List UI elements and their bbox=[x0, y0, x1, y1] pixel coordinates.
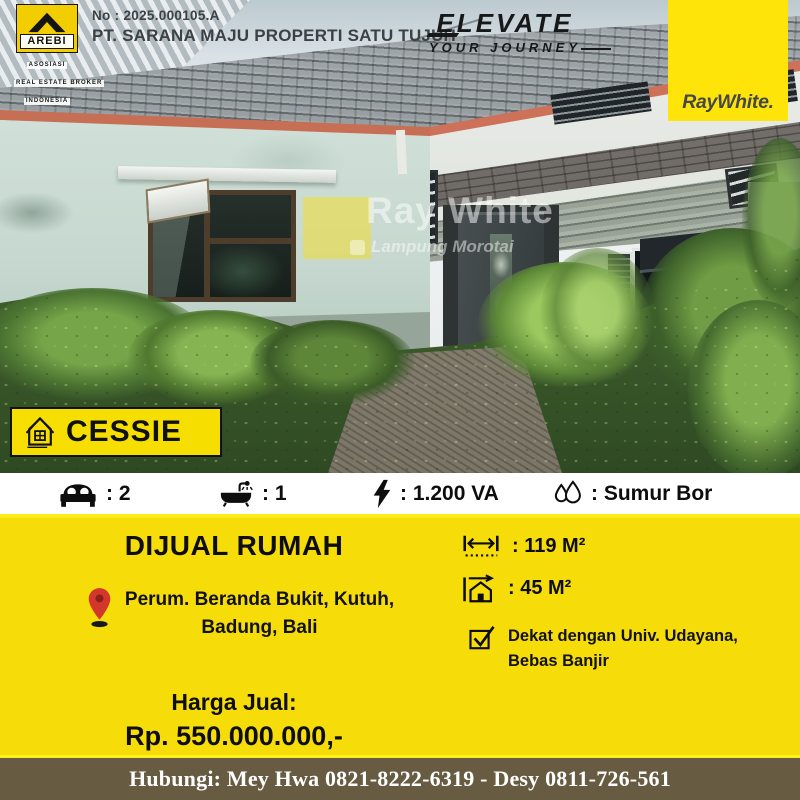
elevate-logo: ELEVATE YOUR JOURNEY bbox=[420, 8, 590, 57]
watermark-text: Ray White bbox=[366, 190, 554, 232]
location-row: Perum. Beranda Bukit, Kutuh, Badung, Bal… bbox=[15, 586, 465, 641]
listing-number: No : 2025.000105.A bbox=[92, 8, 456, 23]
bathrooms-feature: : 1 bbox=[218, 473, 287, 514]
bath-icon bbox=[218, 479, 254, 508]
arebi-logo: AREBI ASOSIASI REAL ESTATE BROKER INDONE… bbox=[14, 4, 80, 107]
water-icon bbox=[552, 480, 583, 507]
building-area-value: : 45 M² bbox=[508, 577, 571, 600]
property-flyer: Ray White Lampung Morotai AREBI ASOSIASI… bbox=[0, 0, 800, 800]
watermark-logo-icon bbox=[350, 240, 365, 255]
location-text: Perum. Beranda Bukit, Kutuh, Badung, Bal… bbox=[125, 586, 394, 641]
features-bar: : 2 : 1 : 1.200 VA : Sumur Bor bbox=[0, 473, 800, 514]
building-size-icon bbox=[462, 574, 496, 603]
company-name: PT. SARANA MAJU PROPERTI SATU TUJUH bbox=[92, 26, 456, 46]
price-label: Harga Jual: bbox=[0, 689, 468, 716]
electricity-icon bbox=[372, 479, 392, 509]
raywhite-logo: RayWhite. bbox=[668, 0, 788, 121]
electricity-feature: : 1.200 VA bbox=[372, 473, 499, 514]
checkbox-icon bbox=[468, 624, 496, 651]
price-value: Rp. 550.000.000,- bbox=[0, 721, 468, 752]
arebi-house-icon bbox=[26, 10, 68, 34]
location-pin-icon bbox=[86, 586, 113, 628]
contact-bar: Hubungi: Mey Hwa 0821-8222-6319 - Desy 0… bbox=[0, 758, 800, 800]
note-text: Dekat dengan Univ. Udayana, Bebas Banjir bbox=[508, 624, 738, 674]
listing-meta: No : 2025.000105.A PT. SARANA MAJU PROPE… bbox=[92, 8, 456, 46]
bedrooms-feature: : 2 bbox=[58, 473, 131, 514]
bed-icon bbox=[58, 480, 98, 508]
house-photo: Ray White Lampung Morotai AREBI ASOSIASI… bbox=[0, 0, 800, 473]
land-area-value: : 119 M² bbox=[512, 535, 585, 558]
details-section: DIJUAL RUMAH Perum. Beranda Bukit, Kutuh… bbox=[0, 514, 800, 758]
building-area-row: : 45 M² bbox=[462, 574, 571, 603]
listing-title: DIJUAL RUMAH bbox=[0, 530, 468, 562]
land-area-row: : 119 M² bbox=[462, 534, 585, 558]
note-row: Dekat dengan Univ. Udayana, Bebas Banjir bbox=[468, 624, 738, 674]
water-feature: : Sumur Bor bbox=[552, 473, 712, 514]
land-width-icon bbox=[462, 534, 500, 558]
house-icon bbox=[22, 413, 58, 451]
cessie-badge: CESSIE bbox=[10, 407, 222, 457]
contact-text: Hubungi: Mey Hwa 0821-8222-6319 - Desy 0… bbox=[129, 766, 671, 792]
arebi-name: AREBI bbox=[20, 34, 74, 49]
watermark-subtext: Lampung Morotai bbox=[350, 237, 514, 257]
